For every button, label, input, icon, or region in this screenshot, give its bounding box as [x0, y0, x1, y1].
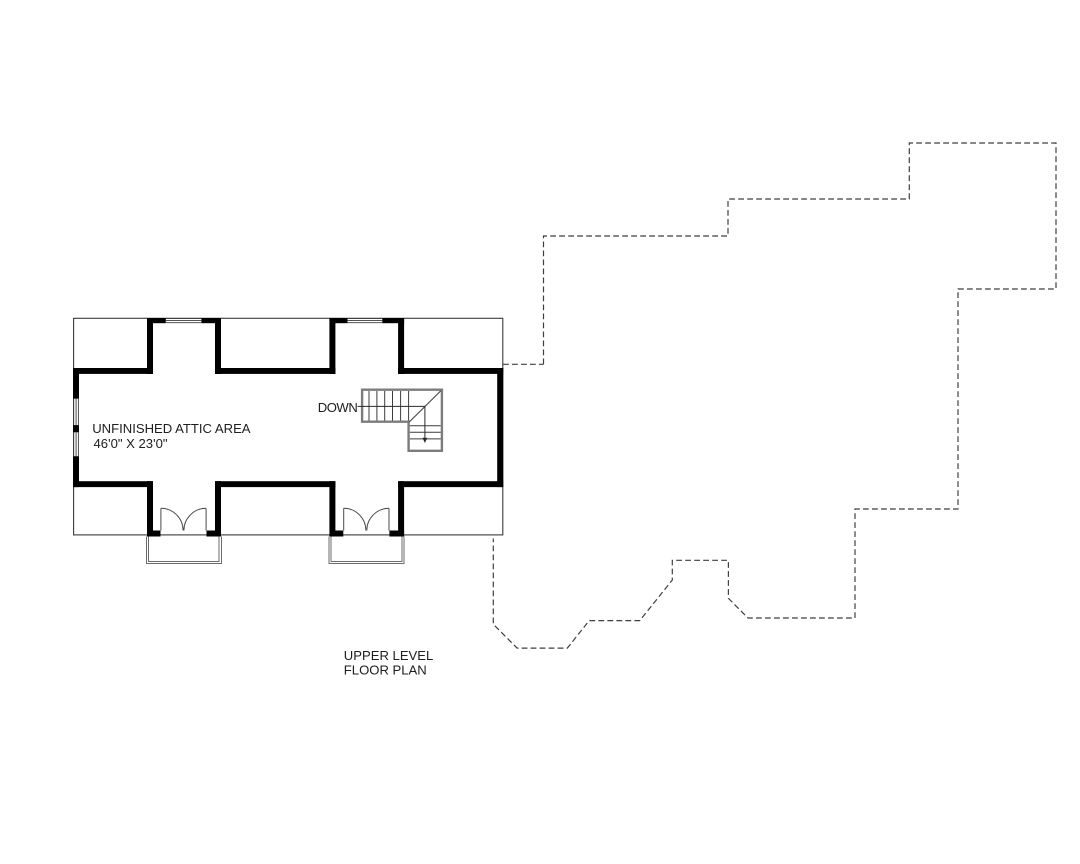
svg-text:UNFINISHED ATTIC AREA: UNFINISHED ATTIC AREA — [92, 421, 251, 436]
svg-text:46'0" X 23'0": 46'0" X 23'0" — [94, 436, 168, 451]
svg-text:FLOOR PLAN: FLOOR PLAN — [344, 663, 427, 678]
svg-text:UPPER LEVEL: UPPER LEVEL — [344, 648, 434, 663]
svg-text:DOWN: DOWN — [318, 400, 358, 415]
